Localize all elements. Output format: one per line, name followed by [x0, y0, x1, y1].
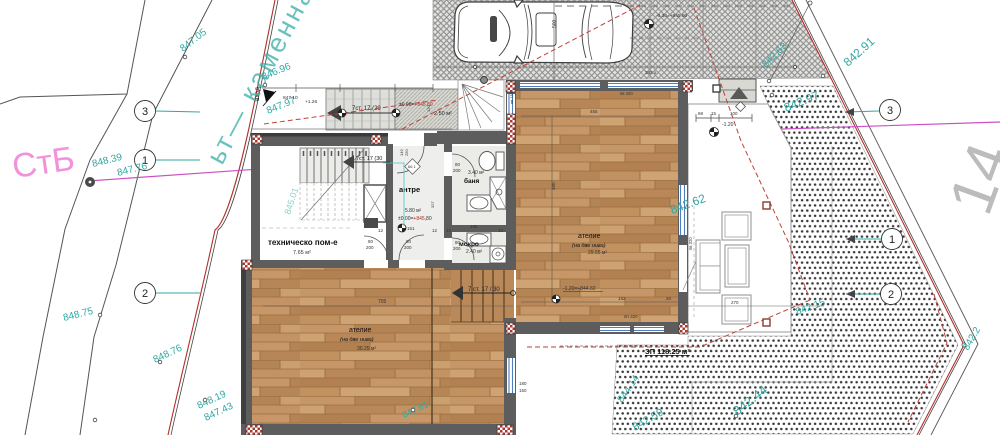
svg-text:антре: антре	[399, 185, 420, 194]
svg-text:пв 150: пв 150	[509, 91, 514, 104]
svg-text:-0.30=+845.90: -0.30=+845.90	[656, 13, 688, 19]
svg-text:пп 320: пп 320	[624, 314, 638, 319]
svg-text:480: 480	[551, 182, 556, 190]
svg-text:1: 1	[889, 234, 895, 246]
svg-text:3: 3	[142, 106, 148, 118]
svg-text:2: 2	[888, 289, 894, 301]
svg-text:2: 2	[142, 288, 148, 300]
svg-text:2.50 м²: 2.50 м²	[434, 111, 452, 117]
svg-text:185: 185	[470, 224, 478, 229]
svg-text:200: 200	[404, 245, 412, 250]
svg-text:7ст. 17 (30: 7ст. 17 (30	[356, 156, 382, 162]
svg-text:7 ст. 17 / 30: 7 ст. 17 / 30	[468, 287, 500, 293]
svg-text:705: 705	[378, 299, 387, 305]
svg-text:100: 100	[730, 111, 738, 116]
svg-text:техническо пом-е: техническо пом-е	[268, 238, 338, 247]
svg-text:7ст. 17 (29: 7ст. 17 (29	[352, 106, 381, 112]
svg-text:15: 15	[711, 111, 717, 116]
svg-text:80: 80	[455, 240, 461, 245]
svg-text:455: 455	[590, 109, 598, 114]
svg-text:±0.00=+845,80: ±0.00=+845,80	[398, 216, 432, 222]
svg-text:200: 200	[453, 246, 461, 251]
svg-text:12: 12	[432, 228, 438, 233]
svg-text:80: 80	[406, 239, 412, 244]
svg-text:-1.20: -1.20	[722, 122, 734, 128]
svg-text:20: 20	[666, 296, 672, 301]
svg-text:68: 68	[698, 111, 704, 116]
svg-text:12: 12	[446, 228, 452, 233]
svg-text:151: 151	[407, 226, 415, 231]
svg-text:мокро: мокро	[459, 241, 479, 248]
svg-text:пв 320: пв 320	[620, 91, 633, 96]
svg-text:383 о: 383 о	[645, 70, 657, 75]
svg-text:150: 150	[519, 388, 527, 393]
svg-text:80: 80	[455, 162, 461, 167]
svg-text:пв 320: пв 320	[688, 237, 693, 250]
svg-text:5.80 м²: 5.80 м²	[405, 208, 422, 214]
svg-text:баня: баня	[464, 177, 480, 185]
svg-text:200: 200	[366, 245, 374, 250]
svg-text:500: 500	[552, 19, 558, 28]
svg-text:30.25 м²: 30.25 м²	[357, 346, 376, 352]
svg-text:120: 120	[426, 105, 431, 112]
svg-text:270: 270	[731, 300, 739, 305]
svg-text:12: 12	[498, 228, 504, 233]
svg-text:66 1: 66 1	[408, 164, 417, 169]
svg-text:200: 200	[453, 168, 461, 173]
svg-text:-1.20=+844.60: -1.20=+844.60	[563, 286, 596, 292]
svg-text:3: 3	[887, 105, 893, 117]
svg-text:(на две нива): (на две нива)	[572, 243, 606, 249]
svg-text:80: 80	[368, 239, 374, 244]
svg-text:3.40 м²: 3.40 м²	[468, 170, 485, 176]
svg-text:ателие: ателие	[578, 233, 601, 240]
svg-text:7.65 м²: 7.65 м²	[293, 250, 311, 256]
svg-text:182: 182	[618, 296, 626, 301]
svg-text:327: 327	[430, 201, 435, 208]
svg-text:2.40 м²: 2.40 м²	[466, 249, 483, 255]
svg-text:ателие: ателие	[349, 327, 372, 334]
svg-text:+1.26: +1.26	[305, 99, 317, 105]
svg-text:250: 250	[404, 149, 409, 156]
svg-text:12: 12	[378, 228, 384, 233]
svg-text:180: 180	[519, 381, 527, 386]
svg-text:29.55 м²: 29.55 м²	[588, 250, 607, 256]
svg-text:ЗП 118.25 м²: ЗП 118.25 м²	[645, 347, 690, 356]
svg-text:(на две нива): (на две нива)	[340, 337, 374, 343]
